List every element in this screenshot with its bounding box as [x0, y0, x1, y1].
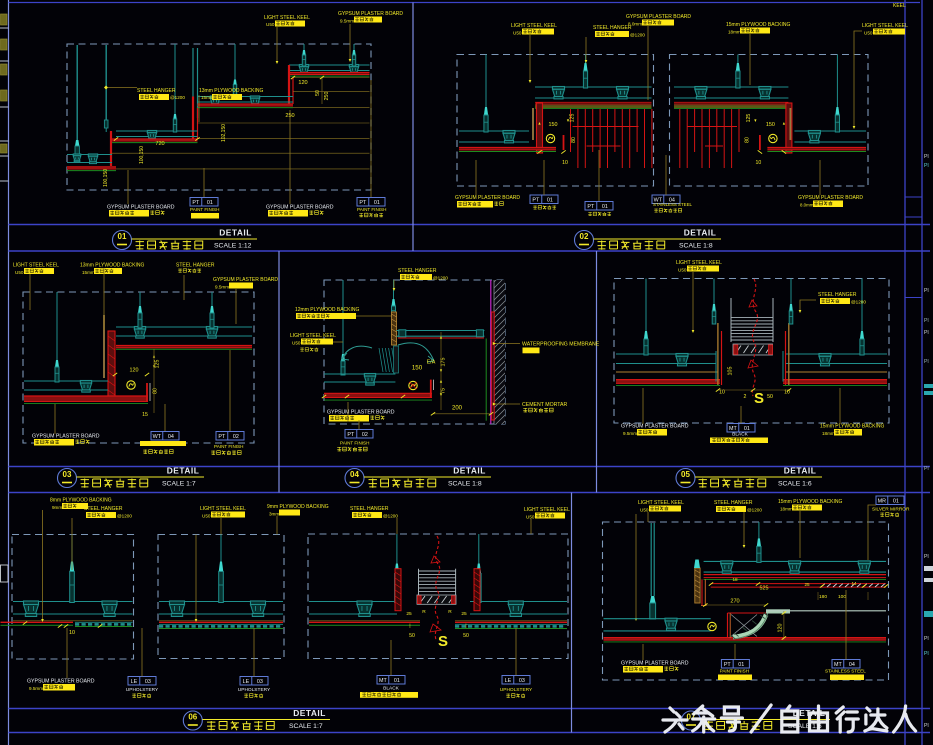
svg-text:DETAIL: DETAIL — [784, 466, 817, 476]
svg-text:13mm PLYWOOD BACKING: 13mm PLYWOOD BACKING — [199, 88, 263, 94]
svg-text:03: 03 — [145, 679, 151, 685]
svg-text:270: 270 — [730, 599, 739, 605]
svg-text:01: 01 — [374, 200, 380, 206]
svg-text:3mm: 3mm — [269, 512, 279, 517]
svg-text:U50: U50 — [513, 31, 522, 36]
svg-text:13mm PLYWOOD BACKING: 13mm PLYWOOD BACKING — [80, 263, 144, 269]
svg-text:MT: MT — [729, 426, 737, 432]
svg-text:GYPSUM PLASTER BOARD: GYPSUM PLASTER BOARD — [621, 661, 689, 667]
svg-text:LE: LE — [243, 679, 250, 685]
svg-text:10: 10 — [756, 160, 762, 166]
svg-text:@1200: @1200 — [747, 508, 762, 513]
svg-text:CEMENT MORTAR: CEMENT MORTAR — [522, 402, 568, 408]
svg-text:120: 120 — [778, 624, 784, 633]
svg-text:04: 04 — [168, 434, 174, 440]
svg-text:Pl: Pl — [924, 651, 929, 657]
svg-text:U50: U50 — [526, 515, 535, 520]
svg-text:DETAIL: DETAIL — [167, 466, 200, 476]
svg-text:50: 50 — [315, 90, 321, 96]
svg-text:18mm: 18mm — [780, 507, 793, 512]
svg-text:25: 25 — [406, 611, 412, 617]
svg-text:SCALE 1:7: SCALE 1:7 — [162, 481, 196, 488]
svg-text:STEEL HANGER: STEEL HANGER — [176, 263, 215, 269]
svg-text:KEEL: KEEL — [893, 3, 906, 9]
svg-text:LIGHT STEEL KEEL: LIGHT STEEL KEEL — [290, 333, 336, 339]
svg-text:9.5mm: 9.5mm — [215, 285, 229, 290]
svg-text:03: 03 — [63, 470, 72, 479]
svg-text:GYPSUM PLASTER BOARD: GYPSUM PLASTER BOARD — [621, 424, 689, 430]
svg-text:25: 25 — [804, 582, 810, 587]
svg-text:8mm PLYWOOD BACKING: 8mm PLYWOOD BACKING — [50, 498, 112, 504]
svg-text:Pl: Pl — [924, 154, 929, 160]
svg-text:UPHOLSTERY: UPHOLSTERY — [500, 687, 533, 693]
svg-text:100,150: 100,150 — [103, 169, 109, 187]
svg-text:PT: PT — [359, 200, 367, 206]
svg-text:LIGHT STEEL KEEL: LIGHT STEEL KEEL — [676, 260, 722, 266]
svg-text:01: 01 — [547, 197, 553, 203]
svg-text:LIGHT STEEL KEEL: LIGHT STEEL KEEL — [264, 15, 310, 21]
svg-text:GYPSUM PLASTER BOARD: GYPSUM PLASTER BOARD — [327, 410, 395, 416]
svg-text:DETAIL: DETAIL — [453, 466, 486, 476]
svg-text:8.0mm: 8.0mm — [628, 22, 642, 27]
svg-text:STEEL HANGER: STEEL HANGER — [398, 268, 437, 274]
svg-text:01: 01 — [118, 232, 127, 241]
svg-text:PT: PT — [218, 434, 226, 440]
svg-text:|: | — [465, 623, 466, 628]
svg-text:WT: WT — [153, 434, 162, 440]
svg-text:Pl: Pl — [924, 359, 929, 365]
svg-text:9mm PLYWOOD BACKING: 9mm PLYWOOD BACKING — [267, 504, 329, 510]
svg-text:PT: PT — [192, 200, 200, 206]
svg-text:Pl: Pl — [924, 318, 929, 324]
svg-text:2: 2 — [744, 394, 747, 400]
svg-text:U50: U50 — [202, 514, 211, 519]
svg-text:SCALE 1:12: SCALE 1:12 — [214, 243, 252, 250]
svg-text:125: 125 — [570, 114, 576, 123]
svg-text:SCALE 1:7: SCALE 1:7 — [289, 723, 323, 730]
svg-text:GYPSUM PLASTER BOARD: GYPSUM PLASTER BOARD — [213, 277, 278, 283]
svg-text:80: 80 — [153, 388, 159, 394]
svg-text:03: 03 — [519, 678, 525, 684]
svg-text:15: 15 — [142, 412, 148, 418]
svg-text:10: 10 — [69, 630, 75, 636]
svg-text:UPHOLSTERY: UPHOLSTERY — [126, 687, 159, 693]
svg-text:04: 04 — [350, 470, 359, 479]
svg-text:SCALE 1:8: SCALE 1:8 — [679, 243, 713, 250]
svg-text:STEEL HANGER: STEEL HANGER — [714, 500, 753, 506]
svg-text:180: 180 — [819, 594, 827, 600]
svg-text:E/A: E/A — [427, 360, 436, 366]
svg-text:@1200: @1200 — [851, 300, 866, 305]
svg-text:PAINT FINISH: PAINT FINISH — [357, 207, 386, 212]
svg-text:PT: PT — [532, 197, 540, 203]
svg-text:@1200: @1200 — [117, 514, 132, 519]
svg-text:GYPSUM PLASTER BOARD: GYPSUM PLASTER BOARD — [107, 205, 175, 211]
svg-text:15mm PLYWOOD BACKING: 15mm PLYWOOD BACKING — [820, 424, 884, 430]
svg-text:DETAIL: DETAIL — [684, 228, 717, 238]
svg-text:105: 105 — [728, 367, 734, 376]
svg-text:LE: LE — [131, 679, 138, 685]
svg-text:12mm PLYWOOD BACKING: 12mm PLYWOOD BACKING — [295, 307, 359, 313]
svg-text:GYPSUM PLASTER BOARD: GYPSUM PLASTER BOARD — [798, 195, 863, 201]
svg-text:S: S — [438, 633, 448, 650]
svg-text:Pl: Pl — [924, 636, 929, 642]
svg-text:01: 01 — [207, 200, 213, 206]
svg-text:125: 125 — [155, 360, 161, 369]
svg-text:15mm PLYWOOD BACKING: 15mm PLYWOOD BACKING — [778, 499, 842, 505]
svg-text:U50: U50 — [266, 22, 275, 27]
svg-text:18mm: 18mm — [728, 30, 741, 35]
svg-text:MT: MT — [379, 678, 387, 684]
svg-text:STEEL HANGER: STEEL HANGER — [84, 506, 123, 512]
svg-text:125: 125 — [746, 114, 752, 123]
svg-text:U50: U50 — [15, 270, 24, 275]
svg-text:100: 100 — [838, 594, 846, 600]
svg-text:9.5mm: 9.5mm — [340, 19, 354, 24]
svg-text:10: 10 — [562, 160, 568, 166]
svg-text:SCALE 1:8: SCALE 1:8 — [448, 481, 482, 488]
svg-text:50: 50 — [463, 633, 469, 639]
svg-text:GYPSUM PLASTER BOARD: GYPSUM PLASTER BOARD — [32, 434, 100, 440]
svg-text:175: 175 — [441, 358, 447, 367]
svg-text:U50: U50 — [640, 508, 649, 513]
svg-text:02: 02 — [362, 432, 368, 438]
svg-text:Pl: Pl — [924, 723, 929, 729]
svg-text:525: 525 — [760, 586, 769, 592]
svg-text:18mm: 18mm — [822, 431, 835, 436]
svg-text:BLACK: BLACK — [732, 432, 749, 438]
svg-text:DETAIL: DETAIL — [293, 708, 326, 718]
svg-text:BLACK: BLACK — [383, 686, 400, 692]
svg-text:MT: MT — [834, 662, 842, 668]
svg-text:80: 80 — [744, 137, 750, 143]
svg-text:14: 14 — [851, 581, 857, 586]
svg-text:120: 120 — [298, 80, 307, 86]
svg-text:250: 250 — [324, 92, 330, 101]
svg-text:01: 01 — [744, 426, 750, 432]
svg-text:9.5mm: 9.5mm — [29, 686, 43, 691]
svg-text:75: 75 — [441, 388, 447, 394]
svg-text:GYPSUM PLASTER BOARD: GYPSUM PLASTER BOARD — [266, 205, 334, 211]
svg-text:U50: U50 — [292, 341, 301, 346]
svg-text:01: 01 — [738, 662, 744, 668]
svg-text:SILVER MIRROR: SILVER MIRROR — [872, 507, 910, 513]
svg-text:R: R — [422, 609, 426, 615]
svg-text:15mm: 15mm — [82, 270, 95, 275]
svg-text:18: 18 — [732, 577, 738, 582]
svg-text:PT: PT — [587, 204, 595, 210]
svg-text:LIGHT STEEL KEEL: LIGHT STEEL KEEL — [511, 23, 557, 29]
svg-text:STEEL HANGER: STEEL HANGER — [818, 292, 857, 298]
svg-text:LE: LE — [505, 678, 512, 684]
svg-text:10: 10 — [719, 390, 725, 396]
svg-text:PAINT FINISH: PAINT FINISH — [214, 444, 243, 449]
svg-text:04: 04 — [849, 662, 855, 668]
svg-text:@1200: @1200 — [170, 95, 185, 100]
svg-text:LIGHT STEEL KEEL: LIGHT STEEL KEEL — [200, 506, 246, 512]
svg-text:@1200: @1200 — [433, 276, 448, 281]
svg-text:Pl: Pl — [924, 554, 929, 560]
svg-text:R: R — [448, 609, 452, 615]
svg-text:15mm PLYWOOD BACKING: 15mm PLYWOOD BACKING — [726, 22, 790, 28]
svg-text:100,150: 100,150 — [139, 146, 145, 164]
svg-text:U50: U50 — [678, 268, 687, 273]
svg-text:PT: PT — [724, 662, 732, 668]
svg-text:150: 150 — [766, 122, 775, 128]
svg-text:150: 150 — [412, 365, 423, 372]
svg-text:Pl: Pl — [924, 163, 929, 169]
svg-text:150: 150 — [549, 122, 558, 128]
svg-text:SCALE 1:6: SCALE 1:6 — [778, 481, 812, 488]
svg-text:Pl: Pl — [924, 330, 929, 336]
svg-text:01: 01 — [394, 678, 400, 684]
svg-text:01: 01 — [602, 204, 608, 210]
svg-text:102,150: 102,150 — [221, 124, 227, 142]
svg-text:Pl: Pl — [924, 288, 929, 294]
svg-text:9.5mm: 9.5mm — [623, 431, 637, 436]
svg-text:STEEL HANGER: STEEL HANGER — [593, 25, 632, 31]
svg-text:25: 25 — [461, 611, 467, 617]
svg-text:80: 80 — [571, 137, 577, 143]
svg-text:S: S — [754, 390, 764, 407]
svg-text:WATERPROOFING MEMBRANE: WATERPROOFING MEMBRANE — [522, 342, 600, 348]
svg-text:PAINT FINISH: PAINT FINISH — [340, 441, 369, 446]
svg-text:LIGHT STEEL KEEL: LIGHT STEEL KEEL — [524, 507, 570, 513]
svg-text:02: 02 — [580, 232, 589, 241]
svg-text:LIGHT STEEL KEEL: LIGHT STEEL KEEL — [13, 263, 59, 269]
svg-text:120: 120 — [130, 368, 139, 374]
svg-text:01: 01 — [893, 498, 899, 504]
svg-text:DETAIL: DETAIL — [219, 228, 252, 238]
svg-text:MR: MR — [878, 498, 886, 504]
svg-text:U50: U50 — [864, 31, 873, 36]
svg-text:STEEL HANGER: STEEL HANGER — [350, 506, 389, 512]
svg-text:Pl: Pl — [924, 466, 929, 472]
svg-text:LIGHT STEEL KEEL: LIGHT STEEL KEEL — [638, 500, 684, 506]
svg-text:STEEL HANGER: STEEL HANGER — [137, 88, 176, 94]
svg-text:@1200: @1200 — [383, 514, 398, 519]
svg-text:|: | — [409, 623, 410, 628]
svg-text:PAINT FINISH: PAINT FINISH — [720, 669, 749, 674]
svg-text:02: 02 — [233, 434, 239, 440]
svg-text:8.0mm: 8.0mm — [800, 203, 814, 208]
svg-text:200: 200 — [452, 406, 463, 412]
svg-text:PT: PT — [347, 432, 355, 438]
svg-text:05: 05 — [681, 470, 690, 479]
svg-text:GYPSUM PLASTER BOARD: GYPSUM PLASTER BOARD — [626, 14, 691, 20]
svg-text:06: 06 — [188, 713, 197, 722]
svg-text:PAINT FINISH: PAINT FINISH — [190, 207, 219, 212]
svg-text:GYPSUM PLASTER BOARD: GYPSUM PLASTER BOARD — [27, 679, 95, 685]
svg-text:03: 03 — [257, 679, 263, 685]
svg-text:LIGHT STEEL KEEL: LIGHT STEEL KEEL — [862, 23, 908, 29]
svg-text:UPHOLSTERY: UPHOLSTERY — [238, 687, 271, 693]
svg-text:15mm: 15mm — [201, 95, 214, 100]
svg-text:STAINLESS STEEL: STAINLESS STEEL — [653, 202, 693, 207]
svg-text:720: 720 — [155, 141, 164, 147]
svg-text:@1200: @1200 — [630, 33, 645, 38]
svg-text:50: 50 — [409, 633, 415, 639]
svg-text:STAINLESS STEEL: STAINLESS STEEL — [825, 669, 866, 674]
svg-text:50: 50 — [767, 394, 773, 400]
svg-text:GYPSUM PLASTER BOARD: GYPSUM PLASTER BOARD — [455, 195, 520, 201]
svg-text:GYPSUM PLASTER BOARD: GYPSUM PLASTER BOARD — [338, 11, 403, 17]
svg-text:9mm: 9mm — [52, 505, 62, 510]
